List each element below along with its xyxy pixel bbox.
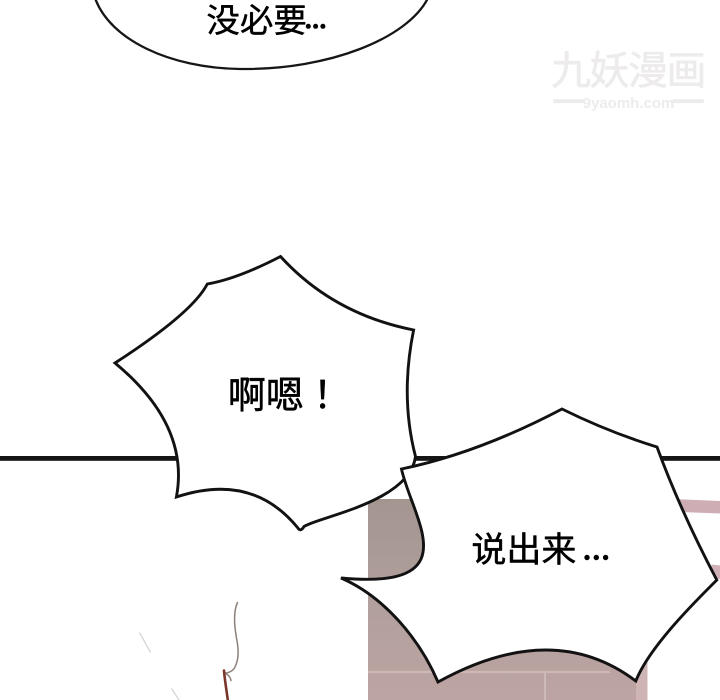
svg-text:9yaomh.com: 9yaomh.com xyxy=(583,95,675,112)
